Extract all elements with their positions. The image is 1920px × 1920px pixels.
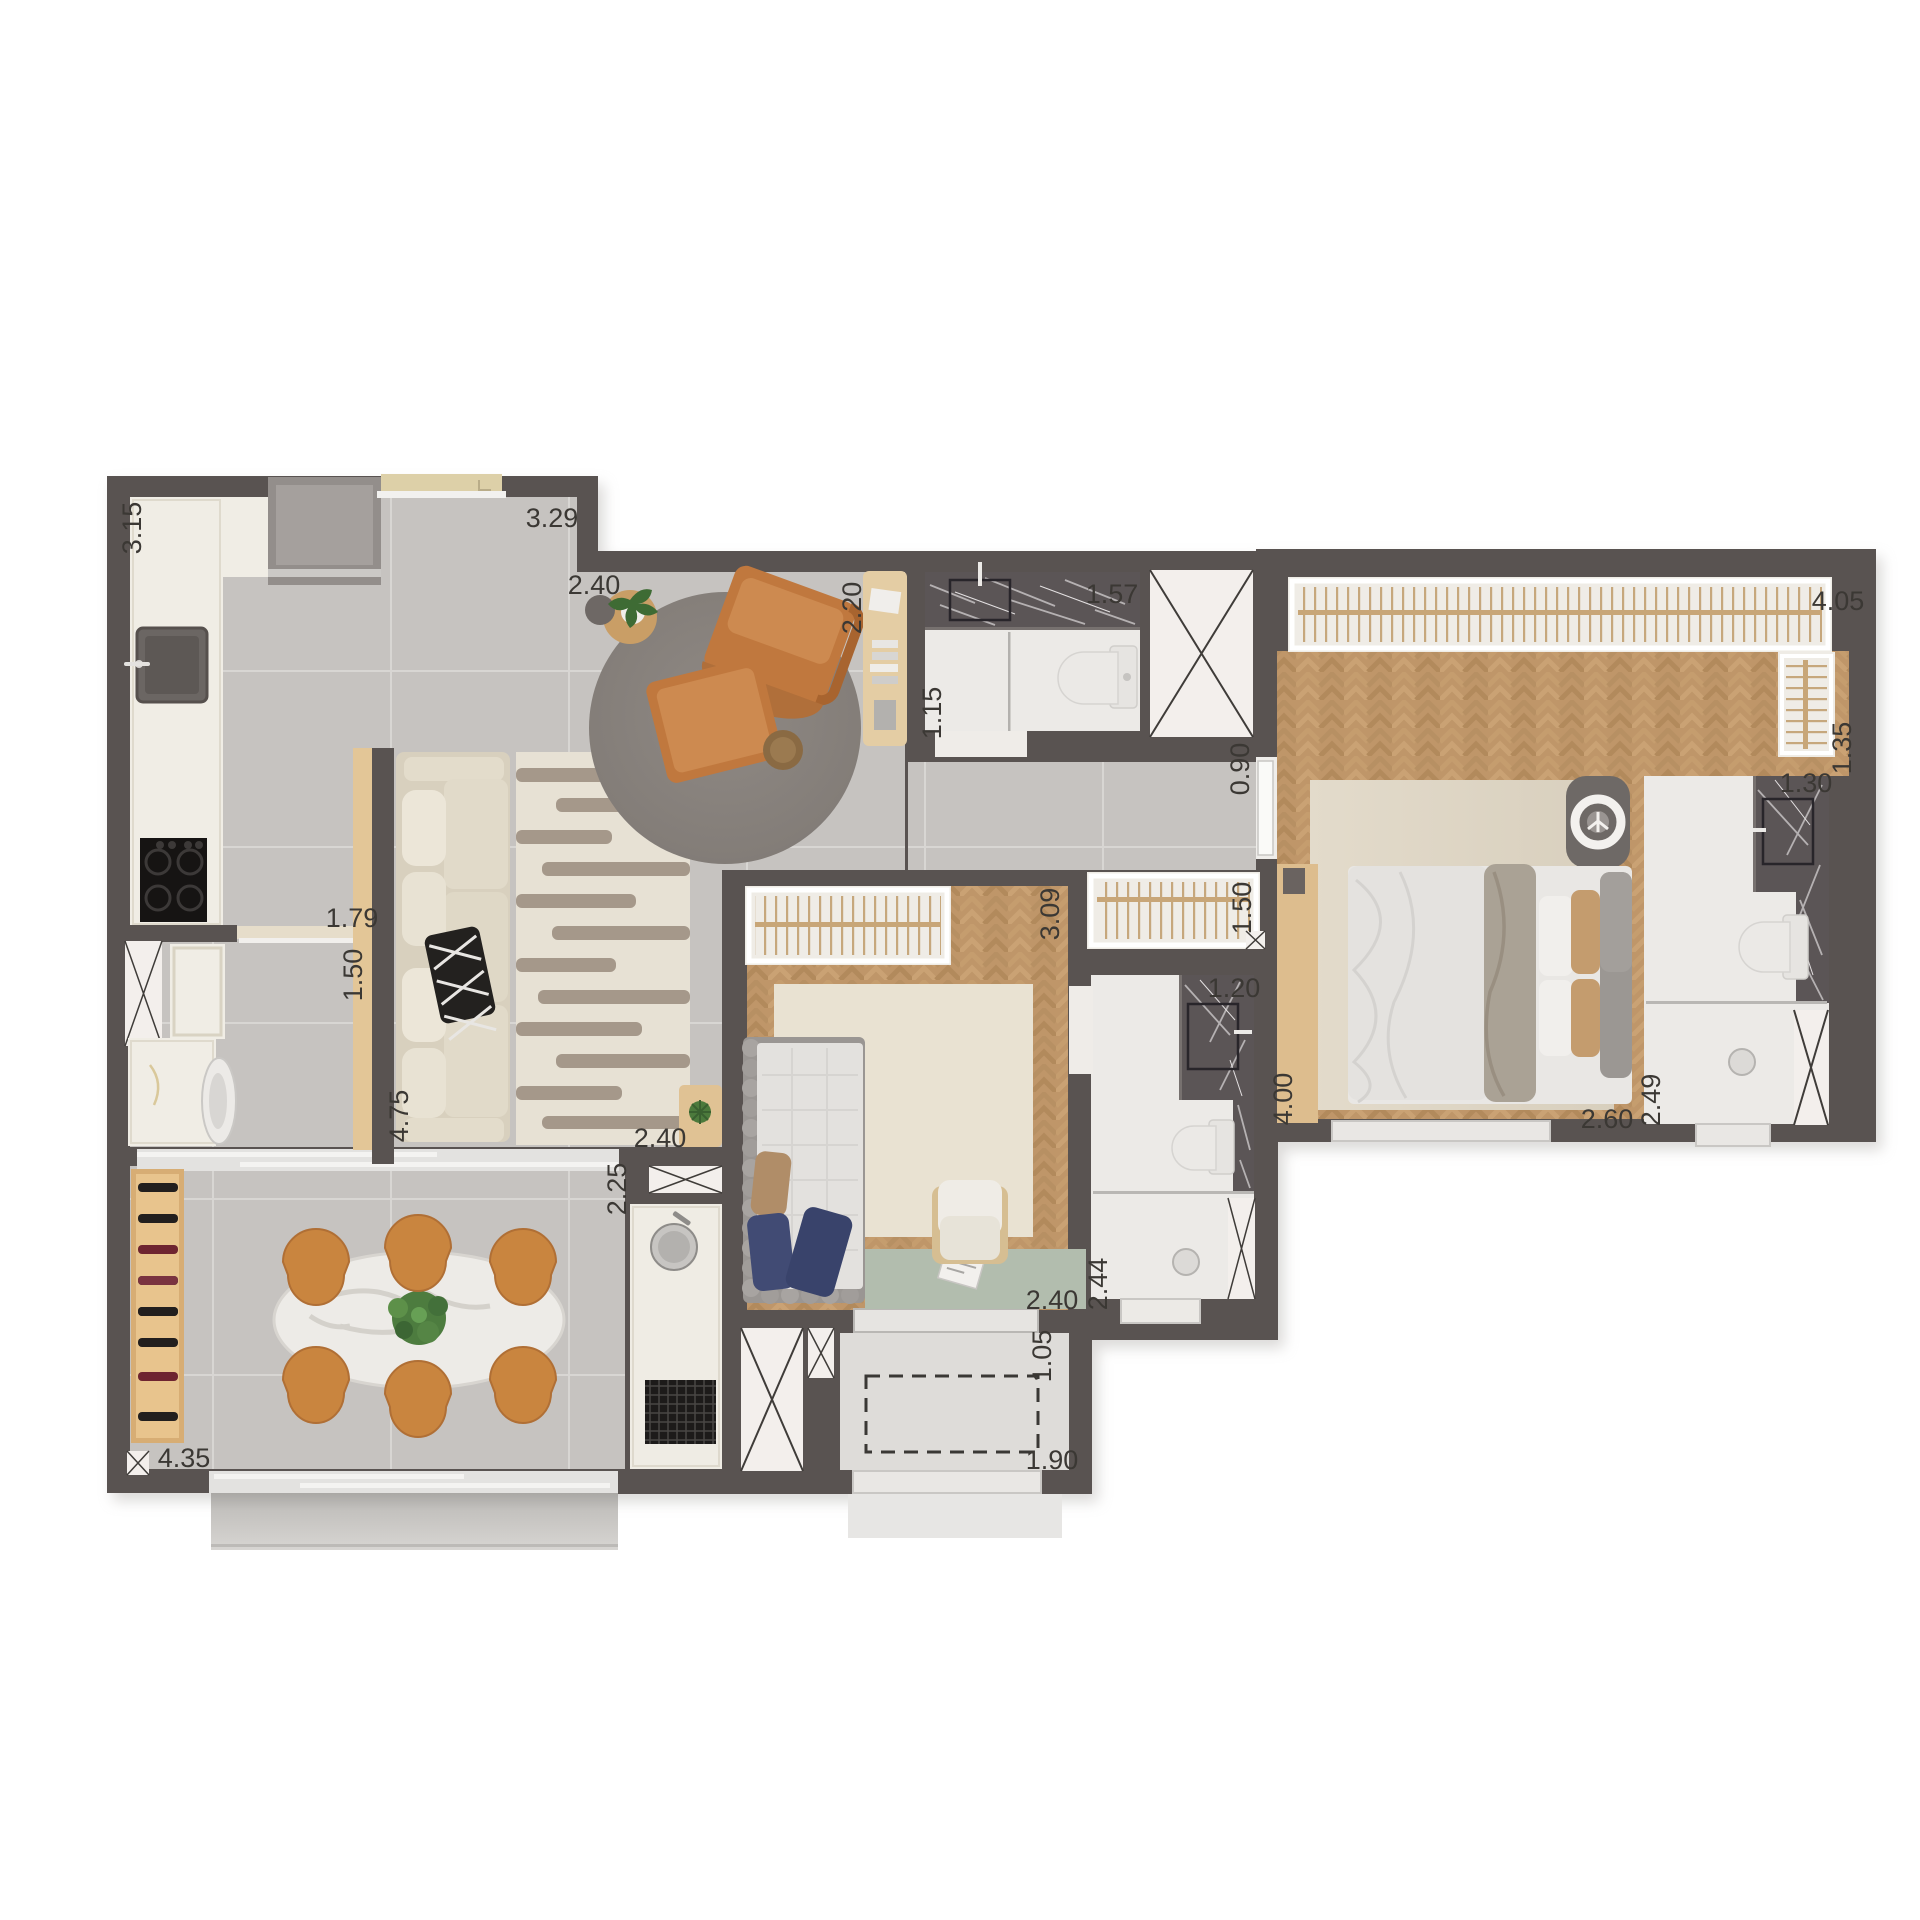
svg-text:1.20: 1.20 bbox=[1208, 973, 1261, 1003]
svg-text:4.75: 4.75 bbox=[384, 1090, 414, 1143]
svg-text:1.50: 1.50 bbox=[338, 949, 368, 1002]
svg-text:1.79: 1.79 bbox=[326, 903, 379, 933]
svg-text:2.40: 2.40 bbox=[1026, 1285, 1079, 1315]
svg-text:1.50: 1.50 bbox=[1227, 882, 1257, 935]
svg-text:2.49: 2.49 bbox=[1636, 1074, 1666, 1127]
svg-text:2.44: 2.44 bbox=[1083, 1258, 1113, 1311]
svg-text:2.20: 2.20 bbox=[837, 582, 867, 635]
svg-text:2.25: 2.25 bbox=[602, 1163, 632, 1216]
svg-text:1.05: 1.05 bbox=[1027, 1330, 1057, 1383]
svg-text:1.15: 1.15 bbox=[917, 687, 947, 740]
svg-text:4.00: 4.00 bbox=[1268, 1073, 1298, 1126]
svg-text:3.09: 3.09 bbox=[1035, 888, 1065, 941]
svg-text:4.05: 4.05 bbox=[1812, 586, 1865, 616]
svg-text:2.40: 2.40 bbox=[634, 1123, 687, 1153]
svg-text:2.40: 2.40 bbox=[568, 570, 621, 600]
svg-text:1.90: 1.90 bbox=[1026, 1445, 1079, 1475]
svg-text:3.29: 3.29 bbox=[526, 503, 579, 533]
svg-text:1.35: 1.35 bbox=[1827, 722, 1857, 775]
svg-text:3.15: 3.15 bbox=[117, 502, 147, 555]
svg-text:1.30: 1.30 bbox=[1780, 768, 1833, 798]
svg-text:4.35: 4.35 bbox=[158, 1443, 211, 1473]
svg-text:0.90: 0.90 bbox=[1225, 743, 1255, 796]
svg-text:1.57: 1.57 bbox=[1086, 579, 1139, 609]
svg-text:2.60: 2.60 bbox=[1581, 1104, 1634, 1134]
